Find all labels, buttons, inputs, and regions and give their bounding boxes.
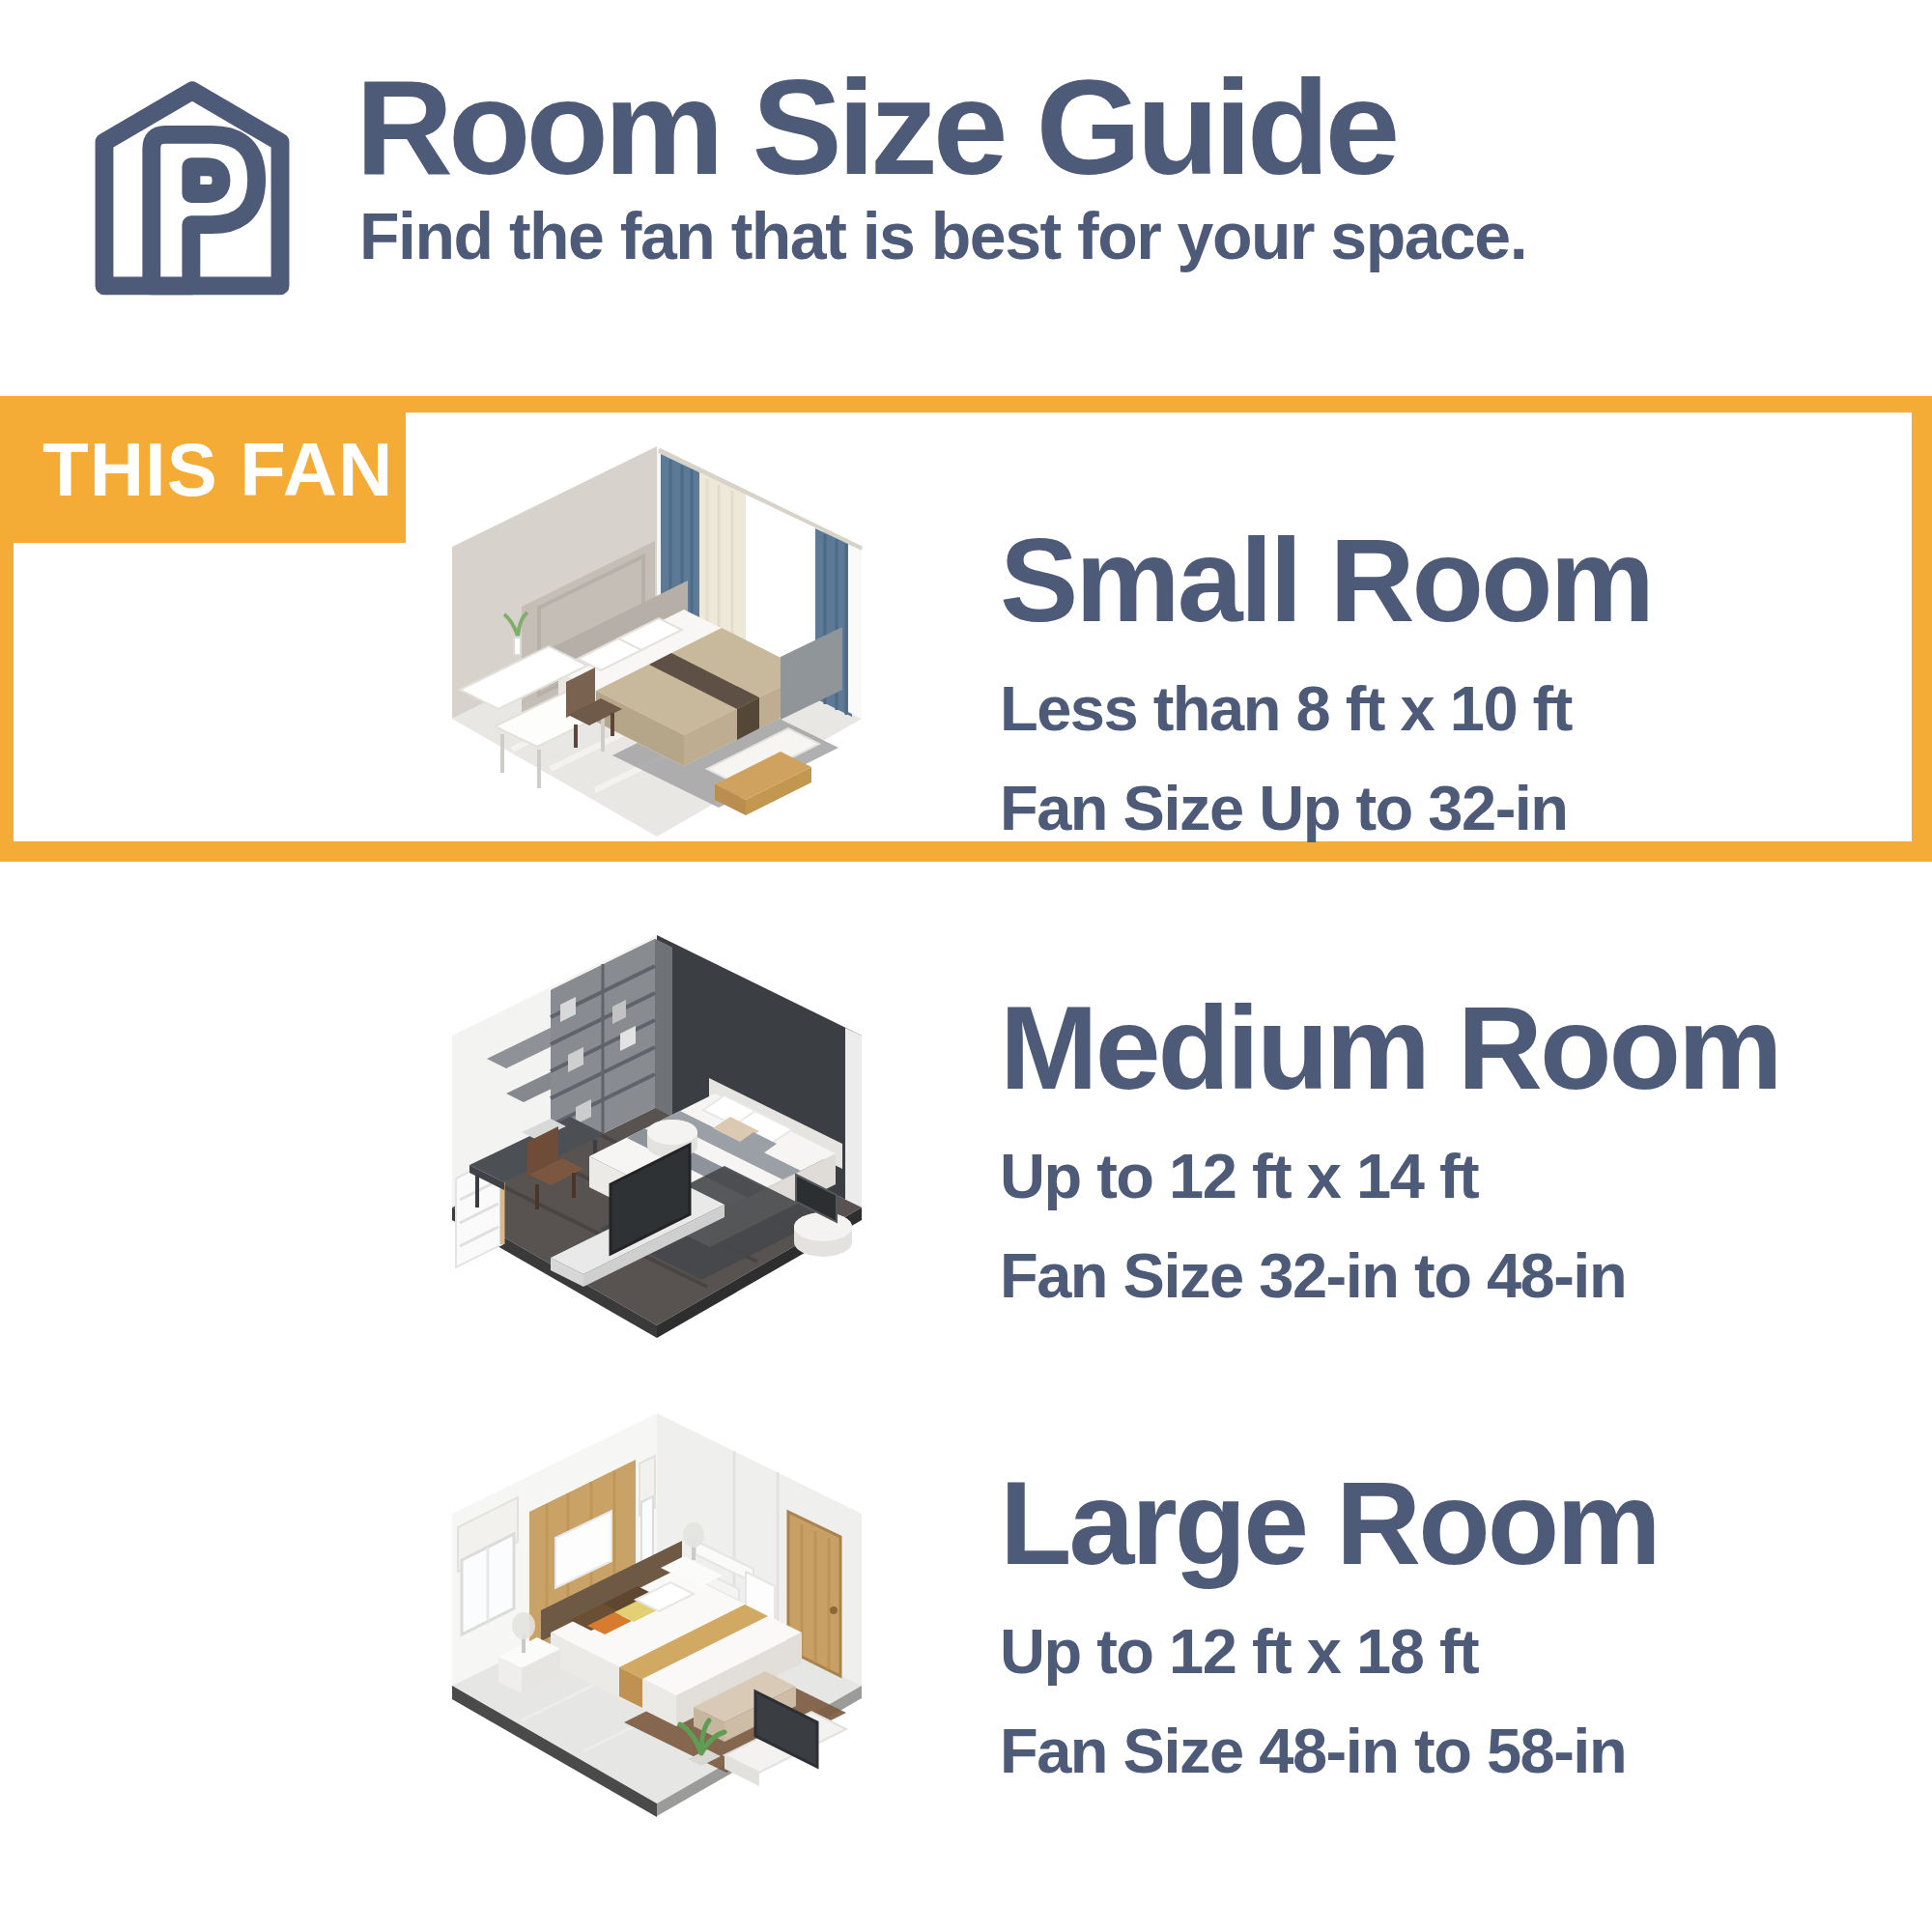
section-large-room: Large Room Up to 12 ft x 18 ft Fan Size … bbox=[1000, 1464, 1898, 1809]
medium-bedroom-illustration bbox=[406, 889, 908, 1352]
page-title: Room Size Guide bbox=[355, 56, 1708, 198]
small-room-title: Small Room bbox=[1000, 522, 1898, 639]
large-bedroom-illustration bbox=[406, 1367, 908, 1831]
large-room-title: Large Room bbox=[1000, 1464, 1898, 1582]
header: Room Size Guide Find the fan that is bes… bbox=[355, 56, 1708, 272]
room-size-guide-infographic: Room Size Guide Find the fan that is bes… bbox=[0, 0, 1932, 1932]
medium-room-title: Medium Room bbox=[1000, 989, 1898, 1107]
large-room-fan-size: Fan Size 48-in to 58-in bbox=[1000, 1711, 1898, 1793]
large-room-dimensions: Up to 12 ft x 18 ft bbox=[1000, 1611, 1898, 1693]
section-medium-room: Medium Room Up to 12 ft x 14 ft Fan Size… bbox=[1000, 989, 1898, 1334]
small-bedroom-illustration bbox=[406, 400, 908, 864]
section-small-room: Small Room Less than 8 ft x 10 ft Fan Si… bbox=[1000, 522, 1898, 867]
small-room-fan-size: Fan Size Up to 32-in bbox=[1000, 768, 1898, 850]
page-subtitle: Find the fan that is best for your space… bbox=[359, 200, 1708, 272]
house-p-logo-icon bbox=[85, 77, 299, 301]
this-fan-badge: THIS FAN bbox=[0, 396, 406, 543]
medium-room-fan-size: Fan Size 32-in to 48-in bbox=[1000, 1236, 1898, 1318]
this-fan-badge-label: THIS FAN bbox=[43, 426, 393, 514]
medium-room-dimensions: Up to 12 ft x 14 ft bbox=[1000, 1136, 1898, 1218]
small-room-dimensions: Less than 8 ft x 10 ft bbox=[1000, 668, 1898, 751]
